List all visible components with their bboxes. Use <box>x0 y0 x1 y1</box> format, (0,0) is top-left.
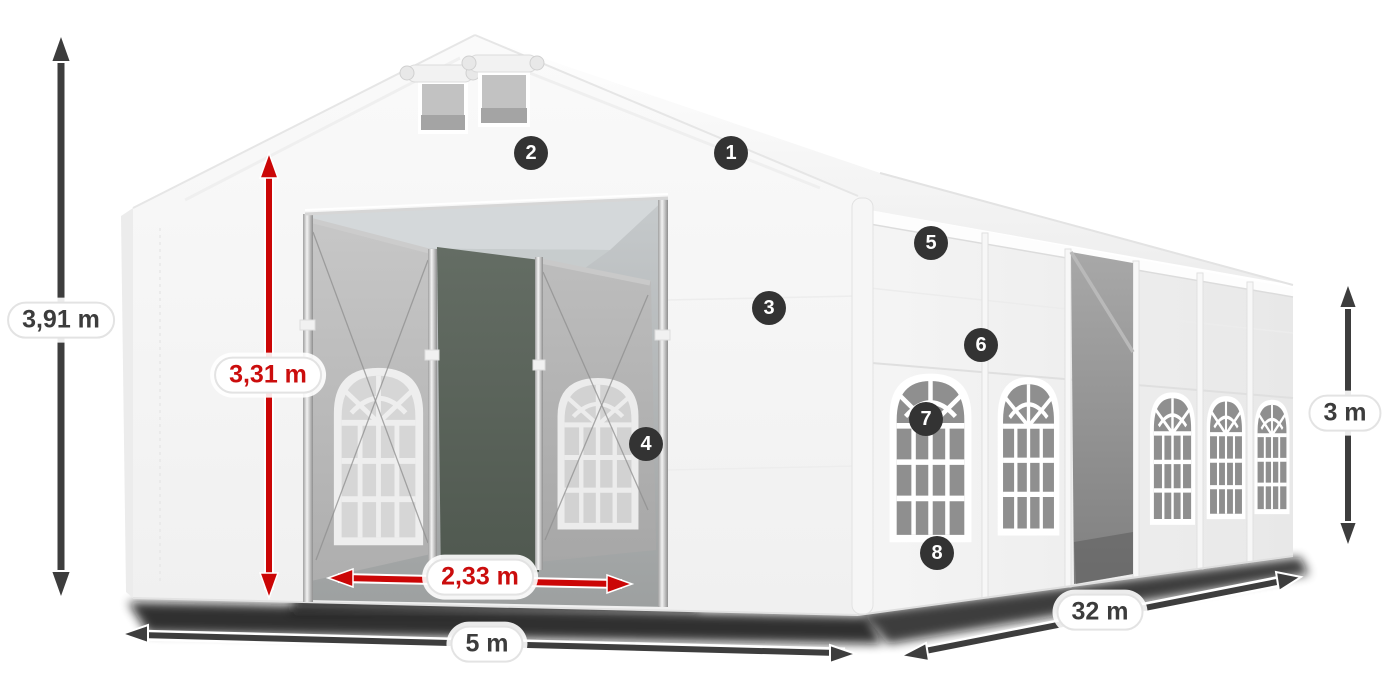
entrance-door-left <box>306 217 434 581</box>
hotspot-1[interactable]: 1 <box>714 136 748 170</box>
hotspot-5[interactable]: 5 <box>914 226 948 260</box>
side-window <box>1255 400 1290 514</box>
corner-strap <box>852 198 873 614</box>
dimension-label-length: 32 m <box>1057 594 1144 631</box>
side-doorway <box>1071 252 1133 584</box>
hotspot-8[interactable]: 8 <box>920 536 954 570</box>
tent-illustration <box>0 0 1400 700</box>
side-window <box>1150 392 1195 524</box>
hotspot-2[interactable]: 2 <box>514 136 548 170</box>
hotspot-3[interactable]: 3 <box>752 291 786 325</box>
dimension-label-total-height: 3,91 m <box>7 302 115 339</box>
dimension-label-width: 5 m <box>450 626 523 663</box>
dimension-label-door-width: 2,33 m <box>426 559 534 596</box>
hotspot-6[interactable]: 6 <box>964 328 998 362</box>
dimension-label-side-height: 3 m <box>1308 395 1381 432</box>
dimension-label-inner-height: 3,31 m <box>214 357 322 394</box>
hotspot-4[interactable]: 4 <box>629 427 663 461</box>
front-entrance <box>300 194 670 607</box>
tent-dimension-diagram: 3,91 m 3,31 m 2,33 m 5 m 32 m 3 m 1 2 3 … <box>0 0 1400 700</box>
side-window <box>1207 396 1246 519</box>
hotspot-7[interactable]: 7 <box>909 402 943 436</box>
tent-front-gable <box>121 35 858 615</box>
side-window <box>998 377 1060 535</box>
entrance-gap <box>437 247 540 584</box>
entrance-door-right <box>536 258 656 562</box>
side-window <box>890 374 972 543</box>
